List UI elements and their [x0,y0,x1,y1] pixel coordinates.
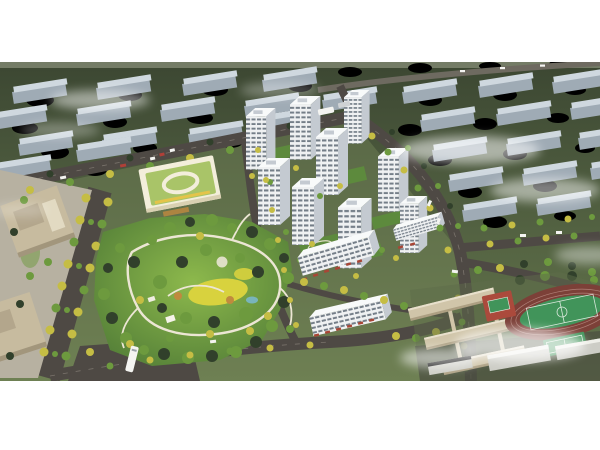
rendering-canvas [0,0,600,450]
park-pond [246,297,258,304]
tower [290,96,320,160]
aerial-rendering-image [0,0,600,450]
tower [258,158,290,225]
tower [292,178,324,245]
